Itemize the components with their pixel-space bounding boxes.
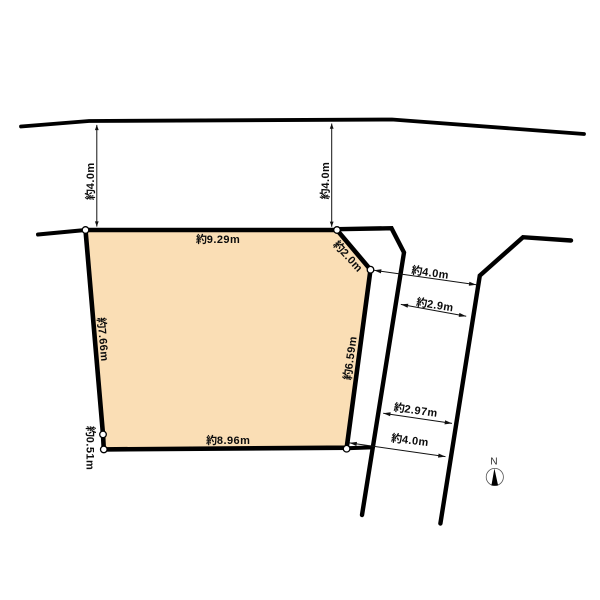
- svg-text:0.51m: 0.51m: [84, 437, 96, 470]
- svg-text:N: N: [490, 456, 497, 467]
- svg-text:8.96m: 8.96m: [217, 435, 250, 447]
- svg-text:2.9m: 2.9m: [426, 298, 454, 314]
- svg-text:4.0m: 4.0m: [421, 266, 449, 282]
- svg-text:9.29m: 9.29m: [207, 234, 240, 246]
- svg-text:4.0m: 4.0m: [85, 162, 97, 189]
- svg-text:4.0m: 4.0m: [401, 434, 429, 449]
- svg-text:4.0m: 4.0m: [320, 162, 332, 189]
